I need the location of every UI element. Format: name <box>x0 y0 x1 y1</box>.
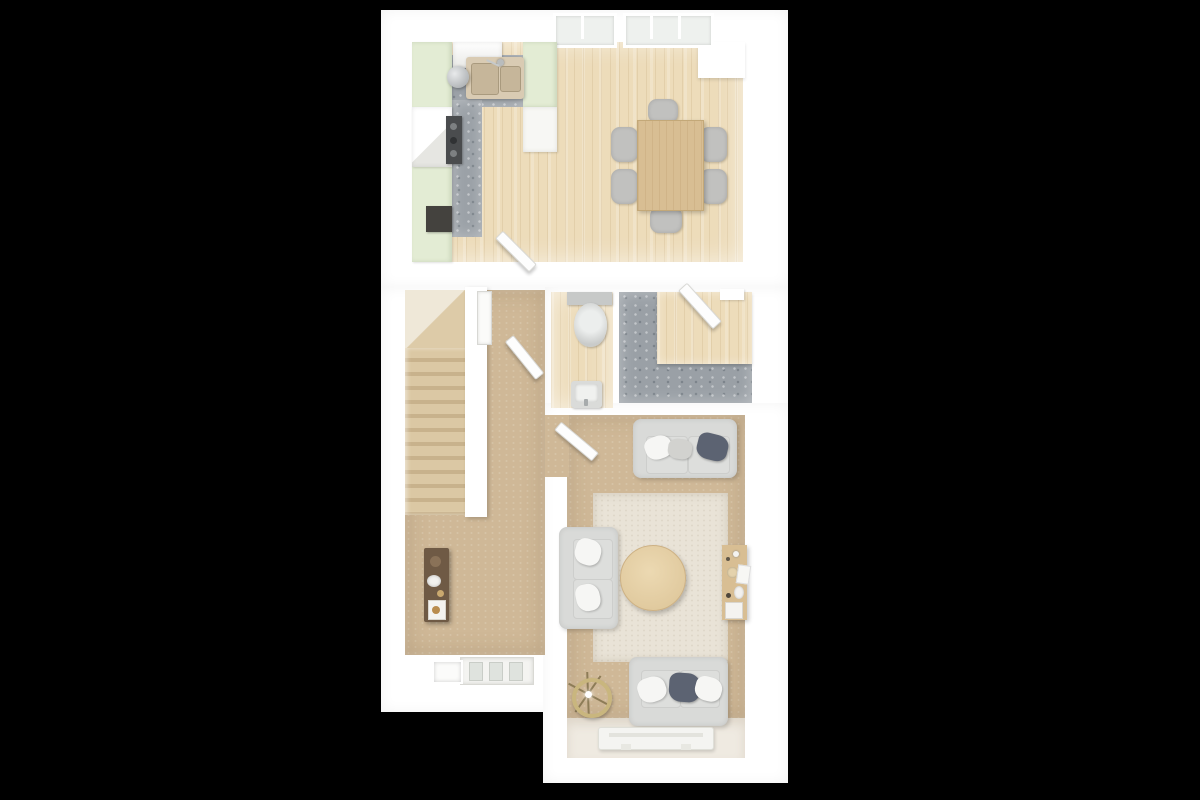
stair-landing <box>405 290 468 350</box>
wc-basin <box>571 381 602 408</box>
front-door-glass <box>509 662 523 681</box>
understairs-cupboard-door <box>477 291 492 345</box>
dining-chair-right-2 <box>700 169 727 204</box>
burner <box>450 150 457 157</box>
floorplan-canvas <box>0 0 1200 800</box>
decor-bowl <box>430 556 441 567</box>
kitchen-cabinet-top-right <box>523 42 557 107</box>
window-mullion <box>678 16 681 39</box>
front-door-sidelight <box>432 660 463 684</box>
hall-console-table <box>424 548 449 622</box>
decor-candle <box>733 551 739 557</box>
sink-bowl-small <box>500 66 521 92</box>
dining-chair-left-2 <box>611 169 638 204</box>
lamp-ring <box>572 678 612 718</box>
dining-chair-right-1 <box>700 127 727 162</box>
decor-tray <box>725 602 743 619</box>
front-door-glass <box>489 662 503 681</box>
sink-counter <box>466 57 524 99</box>
lamp-bulb <box>585 691 592 698</box>
decor-plate <box>427 575 441 587</box>
burner <box>450 123 457 130</box>
bench-foot <box>621 744 631 750</box>
burner <box>450 137 457 144</box>
appliance-dark <box>426 206 452 232</box>
kitchen-cabinet-white <box>523 107 557 152</box>
front-door <box>460 657 534 685</box>
dining-table <box>637 120 704 211</box>
toilet-bowl <box>574 303 607 347</box>
decor-candle <box>437 590 444 597</box>
wc-basin-tap <box>584 399 588 406</box>
kettle <box>447 66 469 88</box>
tv-bench <box>598 727 714 750</box>
decor-dot <box>726 593 731 598</box>
sofa-bottom <box>629 657 728 726</box>
coffee-table <box>620 545 686 611</box>
sofa-top <box>633 419 737 478</box>
decor-cup <box>432 606 440 614</box>
sink-bowl-main <box>471 63 499 95</box>
floor-lamp <box>572 678 604 710</box>
staircase <box>405 290 468 515</box>
decor-frame <box>736 564 752 585</box>
tv-soundbar <box>609 733 703 737</box>
bench-foot <box>681 744 691 750</box>
sofa-left <box>559 527 618 629</box>
decor-dot <box>726 557 730 561</box>
stair-treads <box>405 348 468 515</box>
hob <box>446 116 462 164</box>
decor-vase <box>734 586 744 599</box>
window-kitchen-left <box>553 13 617 48</box>
window-mullion <box>581 16 584 39</box>
living-console-table <box>722 545 747 620</box>
decor-tray <box>428 600 446 620</box>
window-mullion <box>650 16 653 39</box>
front-door-glass <box>469 662 483 681</box>
dining-chair-left-1 <box>611 127 638 162</box>
window-kitchen-right <box>623 13 714 48</box>
utility-door-frame <box>720 289 744 300</box>
